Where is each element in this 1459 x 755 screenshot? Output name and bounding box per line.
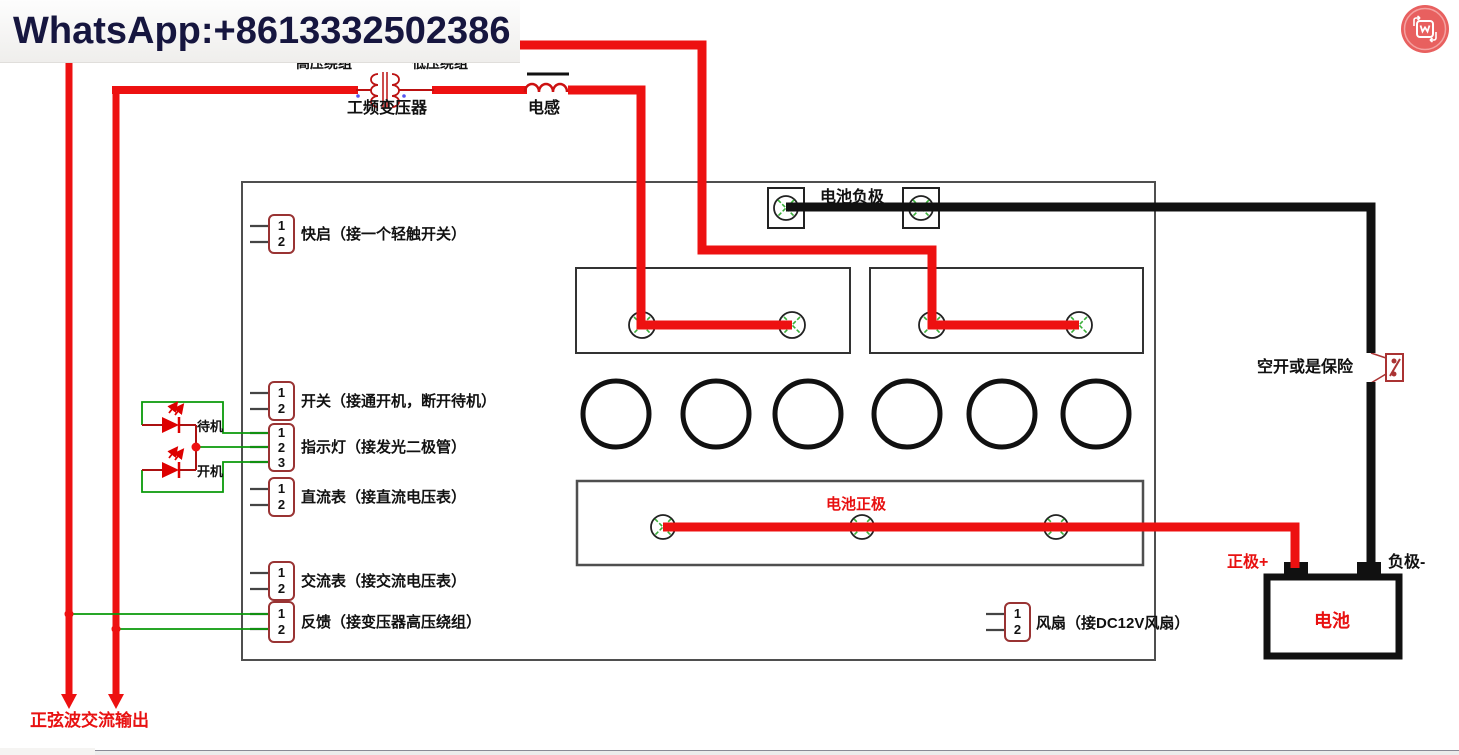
connector-indicator-label: 指示灯（接发光二极管） xyxy=(301,440,466,455)
connector-fan: 1 2 xyxy=(1004,602,1031,642)
inductor-label: 电感 xyxy=(528,101,560,117)
connector-dc-meter: 1 2 xyxy=(268,477,295,517)
heatsink-block-1 xyxy=(576,268,850,353)
connector-quick-start: 1 2 xyxy=(268,214,295,254)
junction-dot-feedback-1 xyxy=(65,610,74,619)
junction-dot-led xyxy=(192,443,201,452)
wiring-diagram-page: 高压绕组 低压绕组 工频变压器 电感 电池负极 电池正极 待机 开机 空开或是保… xyxy=(0,0,1459,755)
connector-dc-meter-label: 直流表（接直流电压表） xyxy=(301,490,466,505)
bottom-bar-left-gap xyxy=(0,748,95,755)
connector-feedback: 1 2 xyxy=(268,601,295,643)
ac-output-label: 正弦波交流输出 xyxy=(30,712,149,729)
connector-power-switch: 1 2 xyxy=(268,381,295,421)
battery-negative-label: 电池负极 xyxy=(820,190,884,206)
ac-output-arrow-1 xyxy=(61,694,77,709)
transformer-label: 工频变压器 xyxy=(347,101,427,117)
connector-ac-meter-label: 交流表（接交流电压表） xyxy=(301,574,466,589)
connector-feedback-label: 反馈（接变压器高压绕组） xyxy=(301,615,481,630)
heatsink-block-2 xyxy=(870,268,1143,353)
ac-output-wires xyxy=(69,58,116,696)
watermark-app-logo-icon[interactable] xyxy=(1400,4,1450,54)
inductor-symbol xyxy=(525,74,569,92)
watermark-text: WhatsApp:+8613332502386 xyxy=(0,10,510,53)
battery-negative-terminal-label: 负极- xyxy=(1388,555,1425,571)
ac-output-arrow-2 xyxy=(108,694,124,709)
connector-fan-label: 风扇（接DC12V风扇） xyxy=(1036,616,1189,631)
junction-dot-feedback-2 xyxy=(112,625,121,634)
breaker-label: 空开或是保险 xyxy=(1257,360,1353,376)
capacitor-bank xyxy=(583,381,1129,447)
battery-label: 电池 xyxy=(1314,612,1350,630)
connector-quick-start-label: 快启（接一个轻触开关） xyxy=(301,227,466,242)
diagram-canvas xyxy=(0,0,1459,755)
breaker-symbol xyxy=(1370,349,1403,387)
connector-indicator: 1 2 3 xyxy=(268,423,295,472)
led-standby-label: 待机 xyxy=(197,420,223,433)
connector-power-switch-label: 开关（接通开机，断开待机） xyxy=(301,394,496,409)
bottom-scrollbar[interactable] xyxy=(95,750,1459,755)
battery-positive-terminal-label: 正极+ xyxy=(1227,555,1268,571)
led-circuit xyxy=(65,402,269,634)
led-power-on-label: 开机 xyxy=(197,465,223,478)
battery-positive-label: 电池正极 xyxy=(826,497,886,512)
watermark-banner: WhatsApp:+8613332502386 xyxy=(0,0,520,63)
watermark-app-logo-glyph xyxy=(1400,4,1450,54)
connector-ac-meter: 1 2 xyxy=(268,561,295,601)
